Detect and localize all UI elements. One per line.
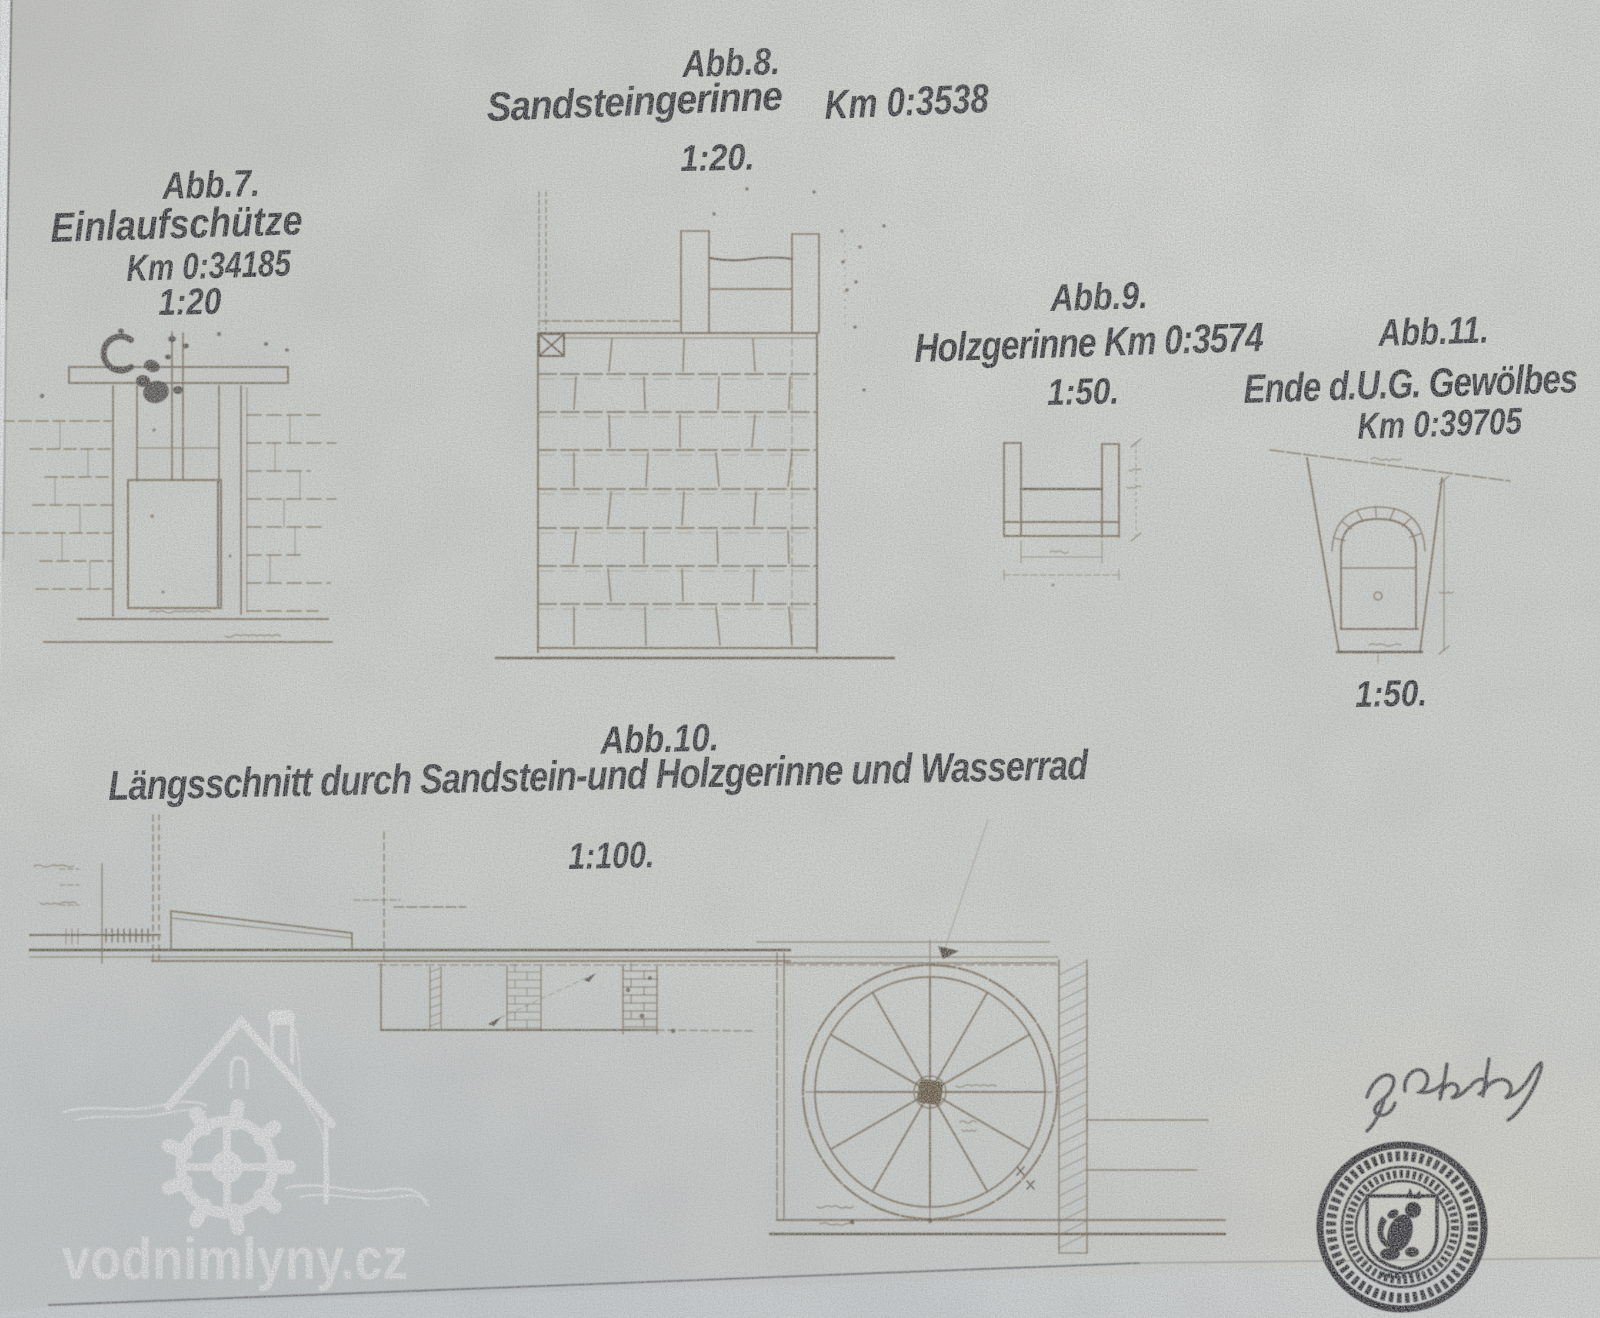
svg-text:vodnimlyny.cz: vodnimlyny.cz — [62, 1227, 408, 1292]
